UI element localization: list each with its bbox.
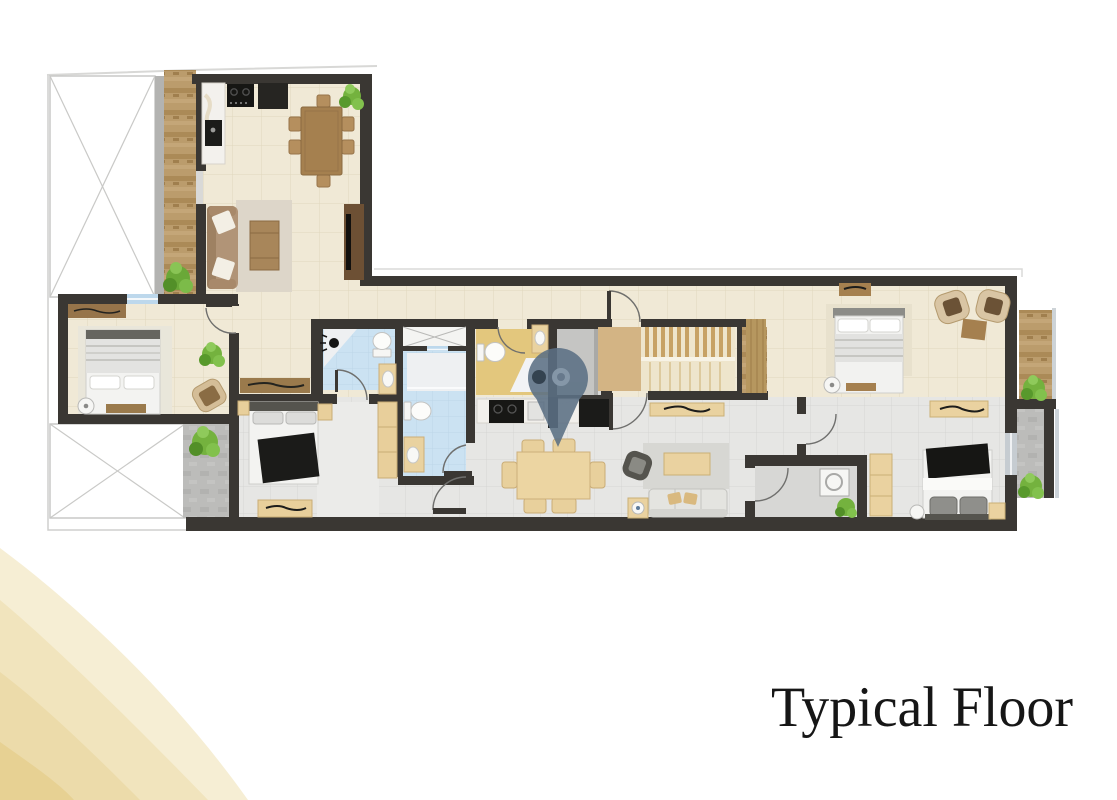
svg-text:Typical Floor: Typical Floor (771, 676, 1073, 739)
